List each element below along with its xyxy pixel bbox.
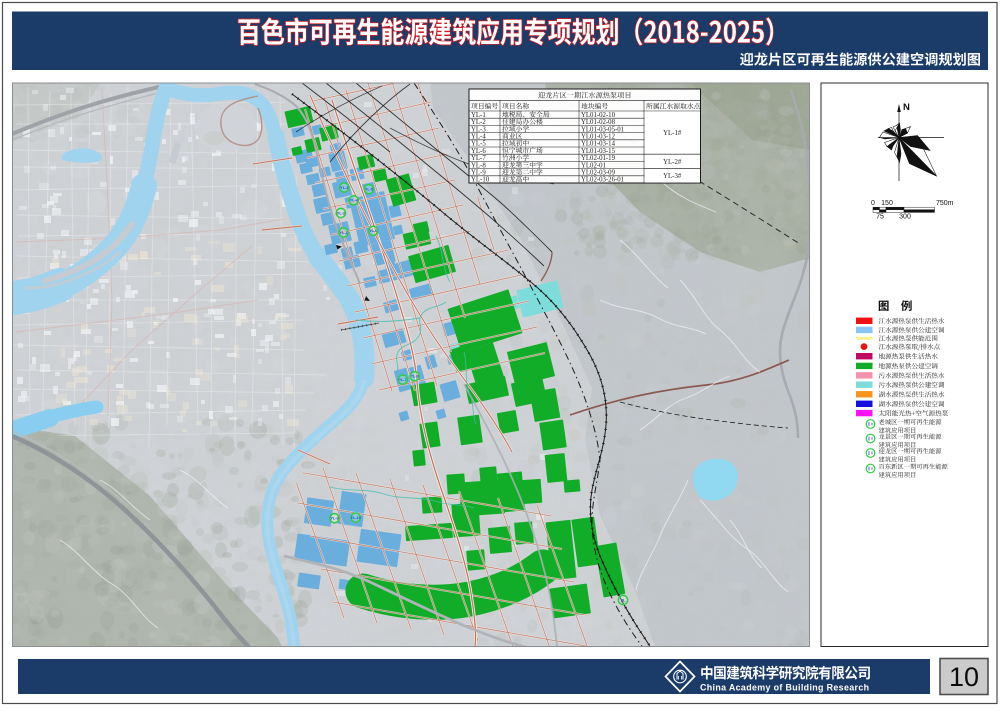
svg-text:YL01-03-05-01: YL01-03-05-01 — [581, 126, 624, 133]
svg-text:YL-9: YL-9 — [331, 517, 339, 521]
svg-text:YL-8: YL-8 — [471, 162, 486, 169]
svg-text:YL-9: YL-9 — [471, 170, 486, 177]
svg-text:YL02-01-19: YL02-01-19 — [581, 155, 616, 162]
svg-text:YL-3: YL-3 — [471, 126, 486, 133]
svg-text:YL-7: YL-7 — [399, 378, 407, 382]
svg-text:YL-3: YL-3 — [340, 186, 348, 190]
svg-text:YL-5: YL-5 — [471, 141, 486, 148]
svg-text:750m: 750m — [936, 200, 954, 207]
svg-text:150: 150 — [881, 200, 893, 207]
svg-text:YL01-03-12: YL01-03-12 — [581, 134, 616, 141]
svg-text:YL02-03-26-01: YL02-03-26-01 — [581, 177, 624, 184]
svg-text:0: 0 — [871, 200, 875, 207]
svg-text:YL01-02-08: YL01-02-08 — [581, 119, 616, 126]
svg-text:300: 300 — [899, 214, 911, 221]
svg-text:YL-4: YL-4 — [471, 134, 486, 141]
svg-text:YL: YL — [621, 598, 626, 602]
svg-text:YL-6: YL-6 — [369, 229, 377, 233]
svg-text:YL02-01: YL02-01 — [581, 162, 606, 169]
svg-text:YL-1#: YL-1# — [663, 130, 682, 137]
svg-text:YL01-03-15: YL01-03-15 — [581, 148, 616, 155]
svg-text:YL-10: YL-10 — [351, 516, 361, 520]
svg-text:YL-7: YL-7 — [471, 155, 486, 162]
svg-text:N: N — [903, 102, 910, 113]
svg-text:YL-4: YL-4 — [350, 199, 359, 203]
svg-text:75: 75 — [876, 214, 884, 221]
svg-text:YL01-02-10: YL01-02-10 — [581, 112, 616, 119]
svg-text:YL02-03-09: YL02-03-09 — [581, 170, 616, 177]
svg-text:YL-2#: YL-2# — [663, 159, 682, 166]
svg-text:YL-2: YL-2 — [337, 211, 345, 215]
svg-text:China Academy of Building Rese: China Academy of Building Research — [700, 683, 869, 693]
svg-text:YL-6: YL-6 — [471, 148, 486, 155]
svg-text:YL-5: YL-5 — [365, 188, 373, 192]
svg-text:YL01-03-14: YL01-03-14 — [581, 141, 616, 148]
svg-text:YL-2: YL-2 — [471, 119, 486, 126]
svg-text:YL-8: YL-8 — [411, 375, 419, 379]
svg-text:YL-10: YL-10 — [471, 177, 490, 184]
svg-text:YL-1: YL-1 — [471, 112, 486, 119]
svg-text:YL-1: YL-1 — [340, 231, 348, 235]
svg-text:YL-3#: YL-3# — [663, 173, 682, 180]
svg-text:10: 10 — [949, 662, 979, 692]
